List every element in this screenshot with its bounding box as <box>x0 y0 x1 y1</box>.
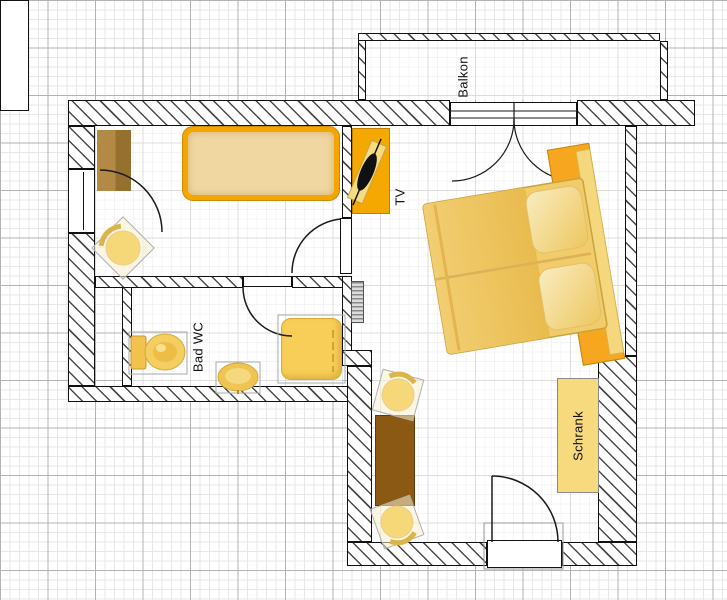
wall-top-left <box>68 100 450 126</box>
floorplan: Balkon TV Bad WC Schrank <box>0 0 727 600</box>
label-tv: TV <box>393 188 408 205</box>
wall-room1-bottom-left <box>95 276 243 288</box>
entrance-door-opening <box>487 540 562 568</box>
dining-table <box>375 415 415 506</box>
desk <box>97 130 131 191</box>
room1-door-leaf <box>340 218 352 274</box>
window-left-frame-line <box>83 172 84 230</box>
wall-right-lower <box>598 356 637 542</box>
label-wardrobe: Schrank <box>571 411 586 461</box>
wall-left-lower <box>68 233 95 386</box>
wall-step <box>342 350 372 366</box>
wall-bottom-right <box>562 542 637 566</box>
label-bath: Bad WC <box>191 322 206 372</box>
wall-balcony-right <box>660 41 668 100</box>
wall-tv <box>342 126 352 218</box>
radiator <box>351 281 364 323</box>
window-left <box>68 169 95 233</box>
balcony-door-opening <box>450 102 577 126</box>
label-balcony: Balkon <box>456 56 471 98</box>
wall-livingroom-left <box>347 366 372 542</box>
bath-door-leaf <box>243 276 292 287</box>
wall-right-upper <box>625 126 637 356</box>
balcony-floor <box>366 41 660 100</box>
single-bed <box>183 127 339 200</box>
wall-balcony-top <box>358 33 660 41</box>
tv-cabinet <box>352 128 390 214</box>
wall-top-right <box>577 100 695 126</box>
wall-left-upper <box>68 126 95 169</box>
duct-shaft <box>0 0 29 111</box>
wall-bottom-left <box>347 542 487 566</box>
shower-tray <box>281 318 342 380</box>
wall-bath-bottom <box>68 386 352 402</box>
wall-bath-left <box>122 287 132 386</box>
wall-balcony-left <box>358 33 366 100</box>
bedroom-floor-upper <box>352 126 625 356</box>
